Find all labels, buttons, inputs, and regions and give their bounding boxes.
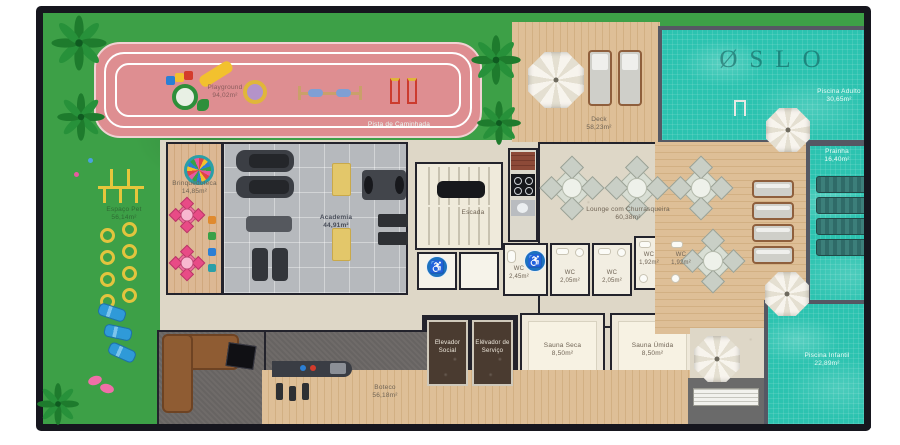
palm-tree-icon: [36, 382, 80, 426]
exercise-bike-icon: [252, 248, 268, 281]
weight-plate-icon: [395, 176, 404, 194]
sun-lounger-icon: [618, 50, 642, 106]
bench-icon: [693, 388, 759, 406]
gym-mat-icon: [378, 232, 408, 245]
pet-ring-icon: [100, 250, 115, 265]
palm-tree-icon: [470, 34, 522, 86]
pet-ring-icon: [122, 266, 137, 281]
burner-icon: [514, 187, 522, 195]
pet-ring-icon: [122, 222, 137, 237]
gym-mat-icon: [332, 228, 351, 261]
toilet-icon: [575, 248, 584, 257]
play-block-icon: [184, 71, 193, 80]
pool-ladder-icon: [734, 100, 736, 116]
adult-pool: [658, 26, 871, 144]
bar-stool-icon: [289, 386, 296, 401]
umbrella-icon: [694, 336, 740, 382]
bbq-grill-icon: [511, 152, 535, 170]
floor-plan: ♿ ♿ Ø: [0, 0, 900, 445]
weight-plate-icon: [364, 176, 373, 194]
label-wc-4: WC 1,92m²: [666, 252, 696, 267]
label-escada: Escada: [450, 209, 496, 217]
treadmill-icon: [236, 176, 294, 198]
butterfly-icon: [74, 172, 79, 177]
sun-lounger-icon: [752, 224, 794, 242]
bottle-icon: [310, 365, 316, 371]
cooler-icon: [330, 363, 346, 374]
accessible-icon: ♿: [426, 256, 448, 278]
sink-icon: [556, 248, 569, 255]
toilet-icon: [639, 274, 648, 283]
label-prainha: Prainha 16,40m²: [806, 148, 868, 164]
palm-tree-icon: [56, 92, 106, 142]
palm-tree-icon: [476, 100, 522, 146]
seesaw-post-icon: [359, 86, 362, 100]
toy-block-icon: [208, 248, 216, 256]
sun-lounger-icon: [752, 246, 794, 264]
spinner-disc-icon: [172, 84, 198, 110]
palm-tree-icon: [50, 14, 108, 72]
pet-ring-icon: [100, 228, 115, 243]
pet-ring-icon: [100, 272, 115, 287]
burner-icon: [514, 177, 522, 185]
label-wc-3: WC 1,92m²: [634, 252, 664, 267]
stair-landing: [437, 181, 485, 198]
label-elevador-servico: Elevador de Serviço: [472, 340, 513, 355]
bottle-icon: [300, 365, 306, 371]
brand-logo: ØSLO: [692, 46, 860, 74]
wet-lounger-icon: [816, 218, 868, 235]
sink-basin-icon: [517, 203, 528, 213]
exercise-bike-icon: [272, 248, 288, 281]
label-espaco-pet: Espaço Pet 56,14m²: [94, 206, 154, 222]
gym-mat-icon: [378, 214, 408, 227]
toy-block-icon: [208, 264, 216, 272]
burner-icon: [525, 177, 533, 185]
wet-lounger-icon: [816, 239, 868, 256]
play-block-icon: [175, 73, 184, 82]
bar-stool-icon: [302, 383, 309, 400]
bush-icon: [197, 99, 209, 111]
label-wc-2: WC 2,05m²: [594, 270, 630, 285]
pet-hurdle-post: [127, 169, 130, 187]
bar-stool-icon: [276, 383, 283, 400]
butterfly-icon: [88, 158, 93, 163]
umbrella-icon: [528, 52, 584, 108]
toilet-icon: [617, 248, 626, 257]
pet-hurdle-leg: [119, 186, 122, 203]
label-piscina-adulto: Piscina Adulto 30,65m²: [810, 88, 868, 104]
sun-lounger-icon: [752, 180, 794, 198]
sink-icon: [639, 241, 651, 248]
burner-icon: [525, 187, 533, 195]
label-wc-1: WC 2,05m²: [552, 270, 588, 285]
label-lounge: Lounge com Churrasqueira 60,38m²: [578, 206, 678, 222]
swing-icon: [390, 78, 400, 104]
label-academia: Academia 44,91m²: [310, 214, 362, 230]
label-pista: Pista de Caminhada: [340, 121, 458, 129]
seesaw-seat-icon: [308, 89, 323, 97]
toilet-icon: [671, 274, 680, 283]
label-elevador-social: Elevador Social: [427, 340, 468, 355]
tv-icon: [225, 342, 256, 370]
label-brinquedoteca: Brinquedoteca 14,85m²: [166, 180, 223, 196]
pet-hurdle-post: [110, 169, 113, 187]
label-playground: Playground 94,02m²: [196, 84, 254, 100]
wet-lounger-icon: [816, 176, 868, 193]
pet-hurdle-leg: [103, 186, 106, 203]
toilet-icon: [507, 250, 516, 263]
toy-block-icon: [208, 232, 216, 240]
pool-ladder-icon: [734, 100, 746, 102]
toy-block-icon: [208, 216, 216, 224]
sun-lounger-icon: [752, 202, 794, 220]
label-piscina-infantil: Piscina Infantil 22,89m²: [788, 352, 866, 368]
storage-room: [459, 252, 499, 290]
pet-ring-icon: [122, 244, 137, 259]
sink-icon: [598, 248, 611, 255]
seesaw-post-icon: [298, 86, 301, 100]
swing-icon: [407, 78, 417, 104]
pet-ring-icon: [122, 288, 137, 303]
wet-lounger-icon: [816, 197, 868, 214]
label-wc-pcd: WC 2,45m²: [504, 266, 534, 281]
pet-hurdle-leg: [135, 186, 138, 203]
treadmill-icon: [236, 150, 294, 172]
sink-icon: [671, 241, 683, 248]
seesaw-seat-icon: [336, 89, 351, 97]
label-sauna-seca: Sauna Seca 8,50m²: [524, 342, 601, 358]
dumbbell-rack-icon: [246, 216, 292, 232]
sun-lounger-icon: [588, 50, 612, 106]
sofa-icon: [162, 334, 193, 413]
play-block-icon: [166, 76, 175, 85]
pool-ladder-icon: [744, 100, 746, 116]
label-boteco: Boteco 56,18m²: [356, 384, 414, 400]
label-deck: Deck 58,23m²: [570, 116, 628, 132]
label-sauna-umida: Sauna Úmida 8,50m²: [614, 342, 691, 358]
gym-mat-icon: [332, 163, 351, 196]
